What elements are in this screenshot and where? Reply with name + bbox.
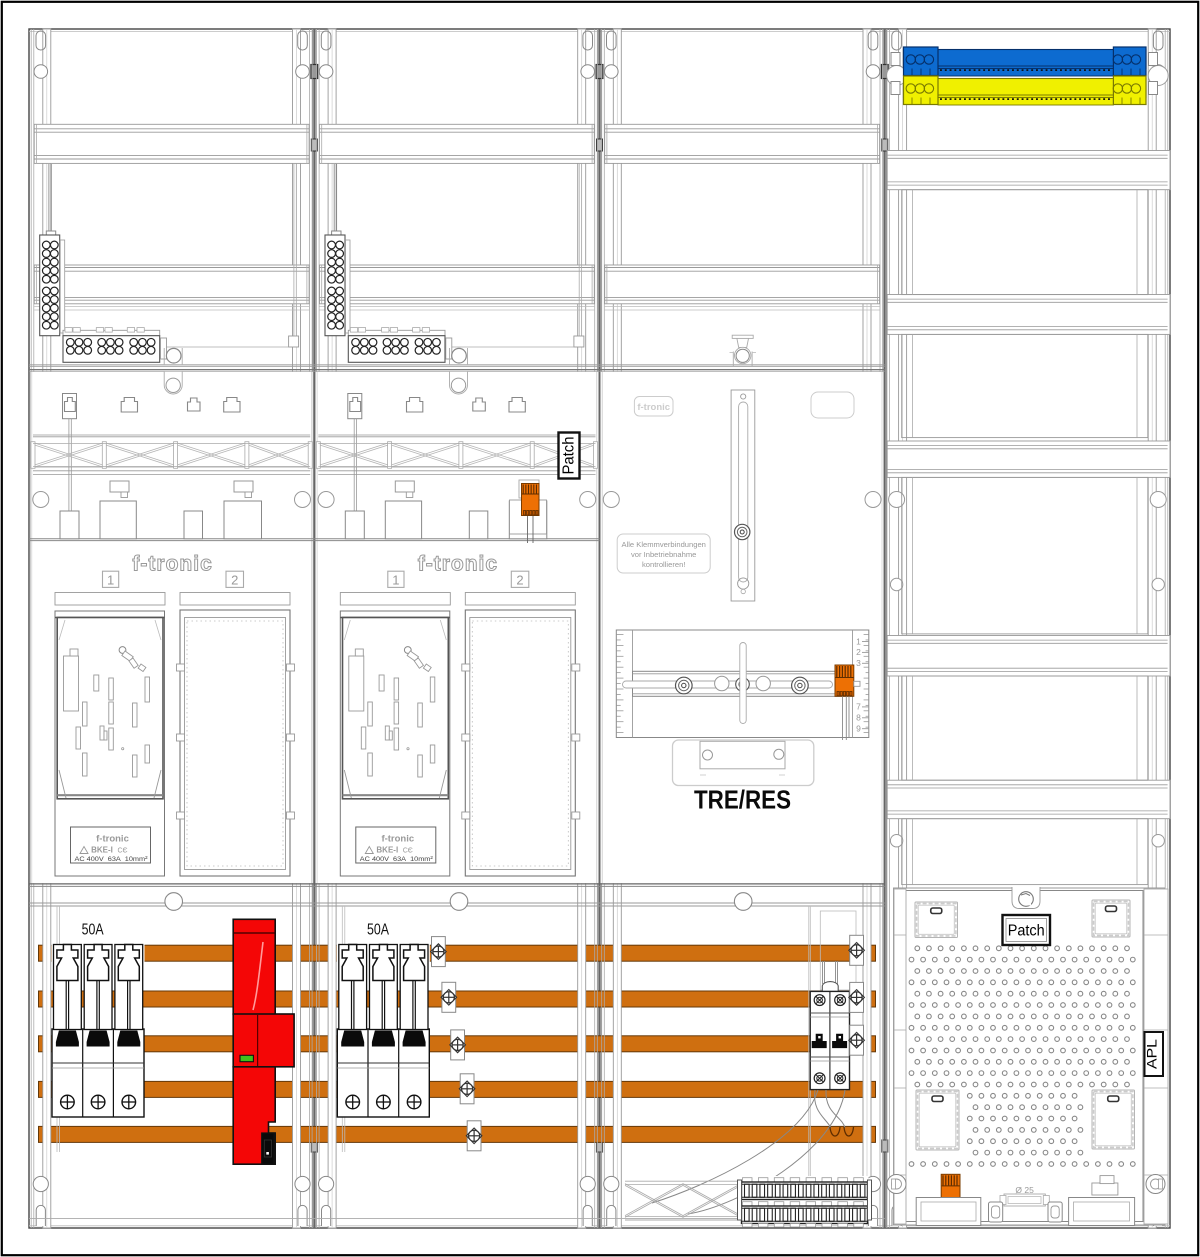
svg-text:AC 400V 63A 10mm²: AC 400V 63A 10mm² <box>75 856 149 863</box>
svg-text:BKE-I: BKE-I <box>376 846 398 855</box>
svg-text:APL: APL <box>1145 1038 1160 1069</box>
svg-text:Patch: Patch <box>561 437 578 475</box>
svg-text:8: 8 <box>856 713 861 723</box>
svg-text:CЄ: CЄ <box>117 848 127 855</box>
svg-text:Ø 25: Ø 25 <box>1015 1185 1034 1195</box>
svg-text:9: 9 <box>856 724 861 734</box>
svg-text:CЄ: CЄ <box>403 848 413 855</box>
svg-text:BKE-I: BKE-I <box>91 846 113 855</box>
svg-text:2: 2 <box>231 572 238 587</box>
svg-text:50A: 50A <box>82 922 105 939</box>
svg-text:2: 2 <box>856 647 861 657</box>
svg-text:1: 1 <box>856 636 861 646</box>
svg-text:7: 7 <box>856 702 861 712</box>
svg-text:Alle Klemmverbindungen: Alle Klemmverbindungen <box>621 540 705 549</box>
svg-text:f-tronic: f-tronic <box>381 834 414 845</box>
svg-text:50A: 50A <box>367 922 390 939</box>
svg-text:TRE/RES: TRE/RES <box>694 785 791 815</box>
svg-text:1: 1 <box>107 572 114 587</box>
svg-text:f-tronic: f-tronic <box>418 553 498 576</box>
svg-text:3: 3 <box>856 658 861 668</box>
svg-text:1: 1 <box>392 572 399 587</box>
svg-text:Patch: Patch <box>1008 923 1045 940</box>
svg-text:f-tronic: f-tronic <box>96 834 129 845</box>
svg-text:2: 2 <box>516 572 523 587</box>
svg-text:f-tronic: f-tronic <box>637 402 670 413</box>
svg-text:AC 400V 63A 10mm²: AC 400V 63A 10mm² <box>360 856 434 863</box>
svg-text:kontrollieren!: kontrollieren! <box>642 560 685 569</box>
svg-text:vor Inbetriebnahme: vor Inbetriebnahme <box>631 550 696 559</box>
svg-text:f-tronic: f-tronic <box>132 553 212 576</box>
